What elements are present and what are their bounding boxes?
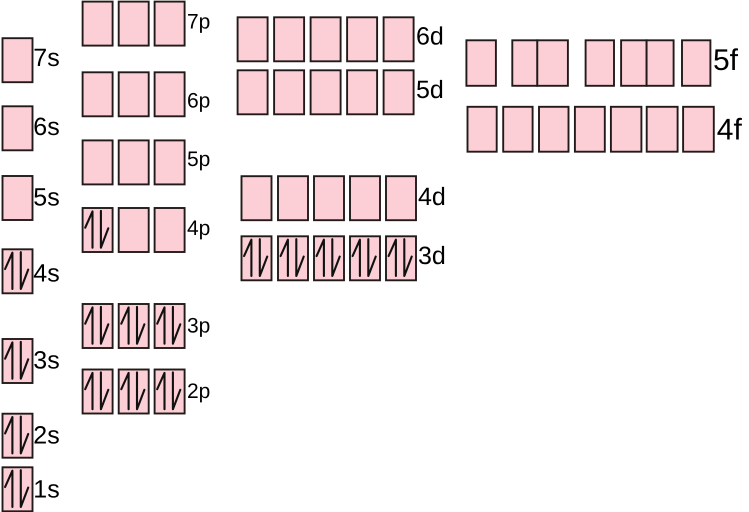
- svg-text:6s: 6s: [33, 113, 59, 141]
- svg-text:5d: 5d: [416, 76, 444, 104]
- svg-text:2p: 2p: [187, 380, 210, 403]
- svg-text:3s: 3s: [33, 346, 59, 374]
- svg-text:4s: 4s: [33, 260, 59, 288]
- svg-text:6p: 6p: [187, 90, 210, 113]
- svg-text:5s: 5s: [33, 184, 59, 212]
- svg-text:5f: 5f: [713, 44, 739, 77]
- svg-text:5p: 5p: [187, 148, 210, 171]
- svg-text:6d: 6d: [416, 23, 444, 51]
- svg-text:1s: 1s: [33, 475, 59, 503]
- svg-text:7p: 7p: [187, 11, 210, 34]
- svg-text:4d: 4d: [418, 183, 446, 211]
- svg-text:3p: 3p: [187, 314, 210, 337]
- svg-text:4f: 4f: [717, 113, 743, 146]
- svg-text:4p: 4p: [187, 217, 210, 240]
- svg-text:7s: 7s: [33, 44, 59, 72]
- svg-text:3d: 3d: [418, 242, 446, 270]
- svg-text:2s: 2s: [33, 422, 59, 450]
